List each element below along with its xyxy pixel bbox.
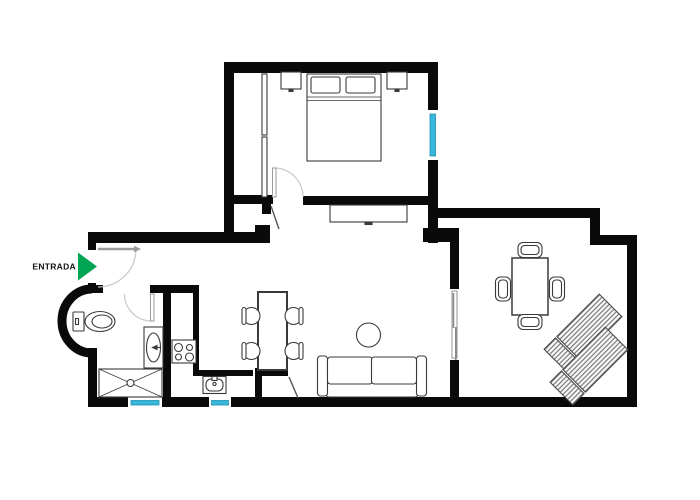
- washbasin: [144, 327, 163, 368]
- nightstand-right: [387, 72, 407, 89]
- pillow-left: [311, 77, 340, 93]
- sofa-back: [326, 383, 418, 397]
- wall-divider-lower: [450, 360, 459, 399]
- dining-chair-top-left: [242, 308, 260, 325]
- terrace-chair-right: [550, 277, 565, 301]
- burner: [186, 353, 194, 361]
- dining-chair-bottom-left: [242, 343, 260, 360]
- sofa-armrest-right: [417, 356, 427, 396]
- shower-drain: [127, 380, 134, 387]
- kitchen-counter-edge-horizontal: [193, 370, 253, 376]
- nightstand-left-knob: [289, 89, 293, 92]
- kitchen-sink: [203, 377, 226, 394]
- wardrobe-lower: [262, 137, 267, 197]
- wall-bath-top-right: [150, 285, 199, 293]
- sideboard: [330, 205, 407, 222]
- wall-terrace-top: [437, 208, 600, 218]
- bedroom-window: [428, 110, 438, 160]
- bathroom-window: [128, 397, 162, 407]
- wall-kitchen-left: [163, 289, 171, 398]
- sliding-door-panel-1: [453, 293, 455, 328]
- sofa-armrest-left: [318, 356, 328, 396]
- terrace-sliding-door: [450, 289, 459, 360]
- bedroom-window-glass: [430, 114, 436, 156]
- dining-chair-bottom-right: [285, 343, 303, 360]
- floor-plan: ENTRADA: [0, 0, 700, 500]
- wardrobe-upper: [262, 74, 267, 135]
- terrace-chair-left: [496, 277, 511, 301]
- shower: [99, 369, 162, 397]
- sofa: [318, 356, 427, 397]
- burner: [176, 354, 182, 360]
- wall-bedroom-door-jamb: [262, 203, 271, 214]
- dining-chair-top-right: [285, 308, 303, 325]
- wall-bedroom-top: [226, 62, 438, 73]
- wall-terrace-step-vertical: [590, 208, 600, 245]
- coffee-table: [357, 323, 381, 347]
- wall-entry-left-upper: [88, 241, 96, 250]
- kitchen-window: [209, 397, 231, 407]
- pillow-right: [346, 77, 375, 93]
- wall-terrace-right: [627, 235, 637, 407]
- kitchen-window-glass: [212, 401, 229, 406]
- wall-divider-upper: [450, 240, 459, 289]
- wall-bedroom-right-upper: [428, 62, 438, 112]
- nightstand-right-knob: [395, 89, 399, 92]
- terrace-chair-bottom: [518, 315, 542, 330]
- terrace-table: [512, 258, 548, 315]
- nightstand-left: [281, 72, 301, 89]
- sofa-cushion-right: [372, 357, 417, 384]
- wall-hall-top: [88, 232, 270, 243]
- bathroom-window-glass: [131, 401, 159, 406]
- stove: [172, 340, 196, 363]
- wall-living-terrace-connector: [423, 228, 459, 242]
- sliding-door-panel-2: [455, 327, 457, 360]
- terrace-chair-top: [518, 243, 542, 258]
- toilet: [73, 312, 115, 332]
- sofa-cushion-left: [328, 357, 373, 384]
- burner: [187, 345, 193, 351]
- wall-utility-stub: [255, 376, 262, 398]
- wall-hall-block: [255, 225, 270, 233]
- wall-bedroom-bottom-right: [303, 196, 438, 205]
- wall-bottom: [88, 397, 637, 407]
- floor-plan-page: ENTRADA: [0, 0, 700, 500]
- entrance-label: ENTRADA: [32, 262, 76, 272]
- wall-bedroom-left: [224, 62, 234, 243]
- sideboard-knob: [365, 222, 372, 225]
- burner: [175, 344, 183, 352]
- dining-table: [258, 292, 287, 370]
- bedroom-door-leaf: [273, 168, 277, 197]
- bathroom-door-leaf: [151, 294, 155, 321]
